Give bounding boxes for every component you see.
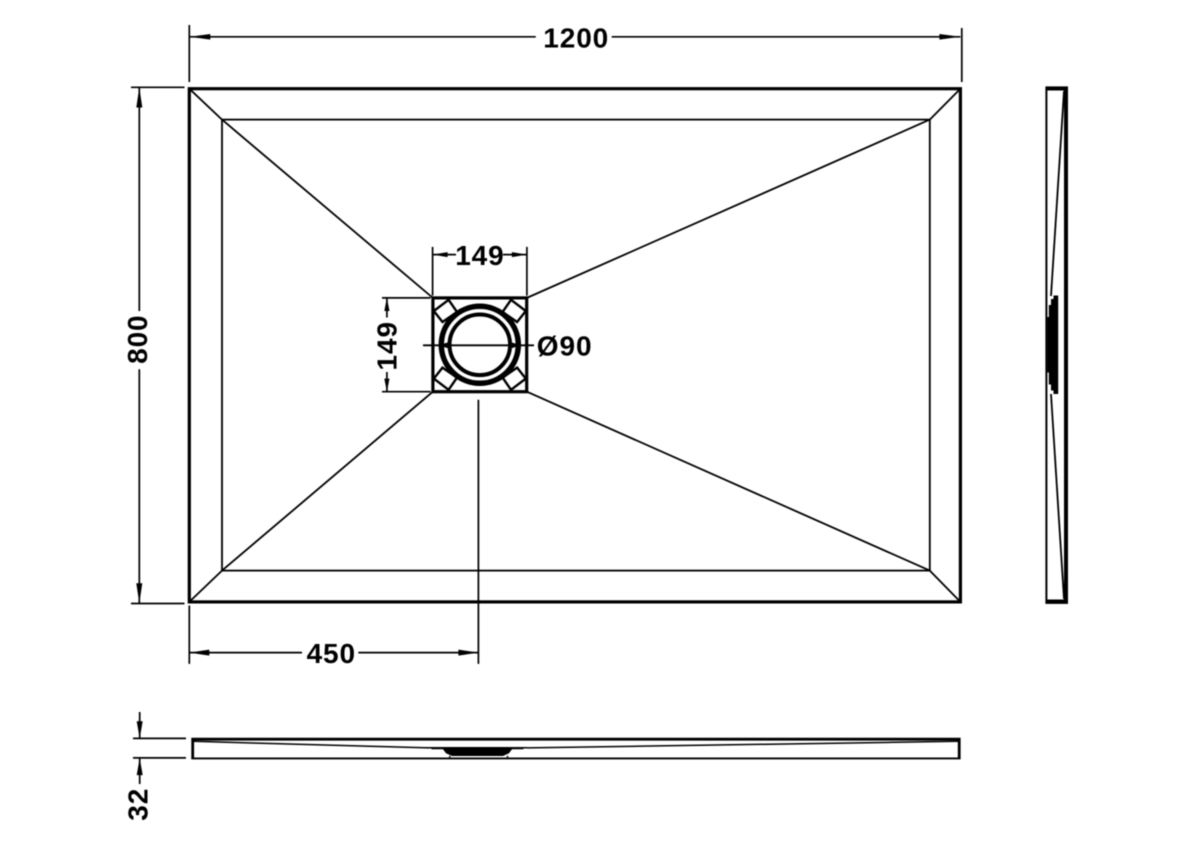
svg-text:149: 149 bbox=[455, 240, 504, 271]
svg-text:32: 32 bbox=[123, 788, 154, 821]
svg-text:800: 800 bbox=[122, 314, 153, 363]
svg-text:1200: 1200 bbox=[543, 22, 609, 53]
svg-text:450: 450 bbox=[307, 638, 356, 669]
svg-text:149: 149 bbox=[372, 321, 403, 370]
svg-text:Ø90: Ø90 bbox=[537, 330, 593, 361]
